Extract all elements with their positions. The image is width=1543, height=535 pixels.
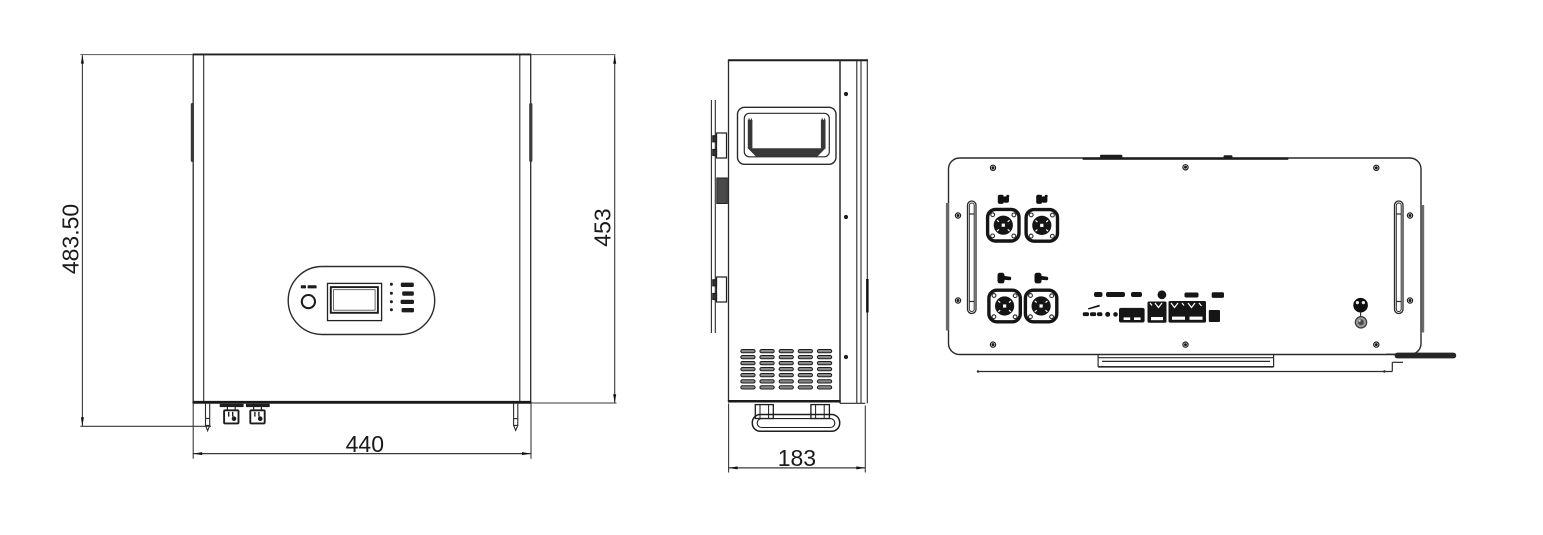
svg-text:453: 453 — [590, 208, 616, 246]
svg-text:440: 440 — [346, 431, 384, 457]
svg-text:183: 183 — [778, 445, 816, 471]
svg-text:483.50: 483.50 — [58, 204, 84, 274]
